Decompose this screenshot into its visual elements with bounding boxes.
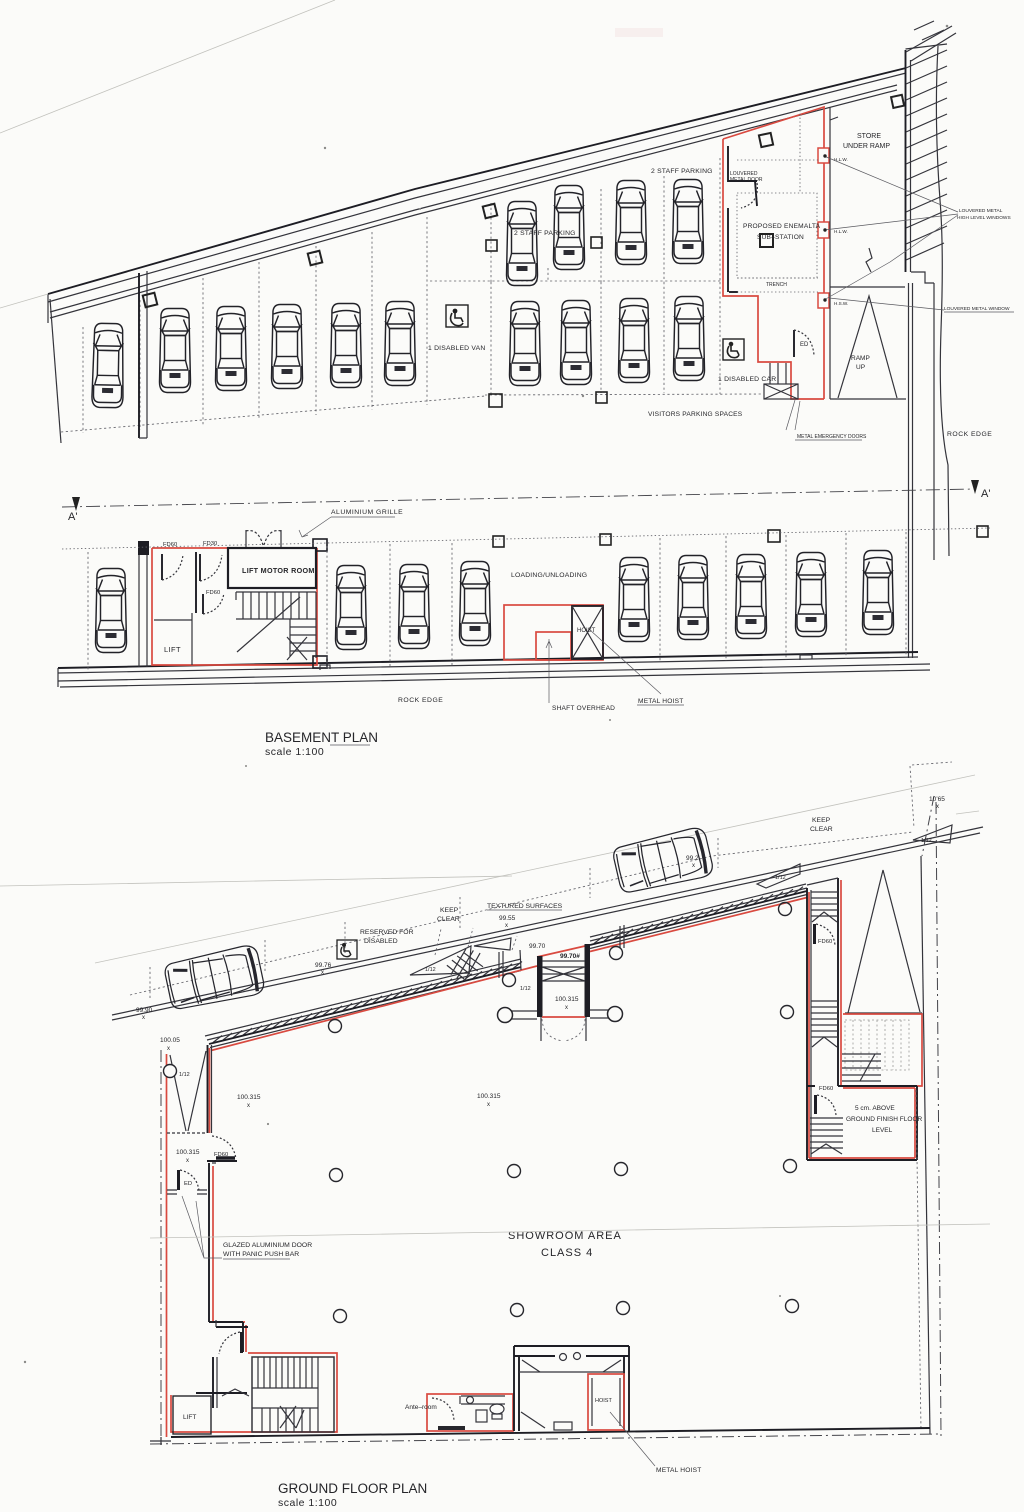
svg-text:LIFT: LIFT bbox=[164, 645, 181, 654]
svg-text:99.70#: 99.70# bbox=[560, 953, 580, 960]
svg-text:1/12: 1/12 bbox=[520, 986, 531, 992]
svg-text:x: x bbox=[936, 804, 939, 810]
svg-text:x: x bbox=[565, 1005, 568, 1011]
svg-text:LOUVERED METAL WINDOW: LOUVERED METAL WINDOW bbox=[944, 306, 1010, 312]
svg-text:5 cm. ABOVE: 5 cm. ABOVE bbox=[855, 1105, 895, 1112]
svg-text:METAL HOIST: METAL HOIST bbox=[638, 698, 683, 705]
svg-text:METAL HOIST: METAL HOIST bbox=[656, 1467, 701, 1474]
svg-text:CLEAR: CLEAR bbox=[810, 826, 833, 833]
svg-text:FD60: FD60 bbox=[214, 1152, 228, 1158]
svg-text:99.76: 99.76 bbox=[315, 962, 332, 969]
svg-text:1 DISABLED VAN: 1 DISABLED VAN bbox=[428, 345, 485, 352]
svg-text:VISITORS PARKING SPACES: VISITORS PARKING SPACES bbox=[648, 411, 743, 418]
svg-text:2 STAFF PARKING: 2 STAFF PARKING bbox=[514, 230, 576, 237]
svg-text:FD60: FD60 bbox=[818, 939, 832, 945]
svg-text:GROUND FLOOR PLAN: GROUND FLOOR PLAN bbox=[278, 1481, 427, 1496]
svg-text:99.55: 99.55 bbox=[499, 915, 516, 922]
svg-text:A': A' bbox=[981, 488, 990, 500]
svg-text:STORE: STORE bbox=[857, 133, 881, 140]
svg-text:10’65: 10’65 bbox=[929, 796, 945, 803]
svg-text:100.315: 100.315 bbox=[237, 1094, 261, 1101]
svg-text:LOUVERED METAL: LOUVERED METAL bbox=[959, 208, 1003, 214]
svg-text:BASEMENT PLAN: BASEMENT PLAN bbox=[265, 730, 378, 745]
svg-text:KEEP: KEEP bbox=[812, 817, 831, 824]
svg-text:ROCK EDGE: ROCK EDGE bbox=[947, 431, 992, 438]
svg-text:UNDER RAMP: UNDER RAMP bbox=[843, 143, 890, 150]
svg-text:1/12: 1/12 bbox=[179, 1072, 190, 1078]
svg-text:scale 1:100: scale 1:100 bbox=[278, 1497, 337, 1509]
svg-text:99.70: 99.70 bbox=[529, 943, 546, 950]
svg-text:x: x bbox=[487, 1102, 490, 1108]
svg-text:SHAFT OVERHEAD: SHAFT OVERHEAD bbox=[552, 705, 615, 712]
svg-text:99.90: 99.90 bbox=[136, 1007, 153, 1014]
svg-text:100.315: 100.315 bbox=[555, 996, 579, 1003]
svg-text:LOADING/UNLOADING: LOADING/UNLOADING bbox=[511, 572, 587, 579]
svg-text:FD30: FD30 bbox=[203, 541, 217, 547]
svg-text:DISABLED: DISABLED bbox=[364, 938, 398, 945]
svg-text:LEVEL: LEVEL bbox=[872, 1127, 893, 1134]
svg-text:GROUND FINISH FLOOR: GROUND FINISH FLOOR bbox=[846, 1116, 923, 1123]
svg-text:RAMP: RAMP bbox=[851, 355, 870, 362]
svg-text:Ante–room: Ante–room bbox=[405, 1404, 437, 1411]
svg-text:WITH PANIC PUSH BAR: WITH PANIC PUSH BAR bbox=[223, 1251, 299, 1258]
svg-text:ROCK EDGE: ROCK EDGE bbox=[398, 697, 443, 704]
svg-text:1 DISABLED CAR: 1 DISABLED CAR bbox=[718, 376, 776, 383]
svg-text:ALUMINIUM GRILLE: ALUMINIUM GRILLE bbox=[331, 509, 403, 516]
svg-text:KEEP: KEEP bbox=[440, 907, 459, 914]
svg-text:1/12: 1/12 bbox=[425, 967, 436, 973]
svg-text:x: x bbox=[321, 970, 324, 976]
svg-text:x: x bbox=[142, 1015, 145, 1021]
svg-text:2 STAFF PARKING: 2 STAFF PARKING bbox=[651, 168, 713, 175]
svg-text:100.315: 100.315 bbox=[477, 1093, 501, 1100]
svg-text:RESERVED FOR: RESERVED FOR bbox=[360, 929, 414, 936]
svg-text:scale 1:100: scale 1:100 bbox=[265, 746, 324, 758]
svg-text:A': A' bbox=[68, 511, 77, 523]
svg-text:H.L.W.: H.L.W. bbox=[834, 229, 848, 234]
svg-text:ED: ED bbox=[184, 1181, 192, 1187]
svg-text:TRENCH: TRENCH bbox=[766, 282, 787, 288]
svg-text:100.05: 100.05 bbox=[160, 1037, 180, 1044]
svg-text:CLEAR: CLEAR bbox=[437, 916, 460, 923]
svg-text:METAL DOOR: METAL DOOR bbox=[730, 177, 763, 183]
svg-text:METAL EMERGENCY DOORS: METAL EMERGENCY DOORS bbox=[797, 434, 867, 440]
svg-text:H.S.W.: H.S.W. bbox=[834, 301, 848, 306]
svg-text:HIGH LEVEL WINDOWS: HIGH LEVEL WINDOWS bbox=[957, 215, 1011, 221]
svg-text:100.315: 100.315 bbox=[176, 1149, 200, 1156]
svg-text:FD60: FD60 bbox=[163, 542, 177, 548]
svg-text:x: x bbox=[186, 1158, 189, 1164]
svg-text:HOIST: HOIST bbox=[595, 1398, 612, 1404]
svg-text:TEXTURED SURFACES: TEXTURED SURFACES bbox=[487, 903, 563, 910]
svg-text:x: x bbox=[505, 923, 508, 929]
svg-text:CLASS 4: CLASS 4 bbox=[541, 1247, 593, 1259]
svg-text:PROPOSED ENEMALTA: PROPOSED ENEMALTA bbox=[743, 223, 821, 230]
svg-text:x: x bbox=[167, 1046, 170, 1052]
svg-text:UP: UP bbox=[856, 364, 865, 371]
svg-text:SUB–STATION: SUB–STATION bbox=[757, 234, 804, 241]
svg-text:1/12: 1/12 bbox=[921, 838, 932, 844]
svg-text:ED: ED bbox=[800, 342, 809, 348]
svg-text:LIFT MOTOR ROOM: LIFT MOTOR ROOM bbox=[242, 566, 315, 575]
svg-text:1/12: 1/12 bbox=[775, 875, 786, 881]
svg-text:x: x bbox=[692, 863, 695, 869]
svg-text:FD60: FD60 bbox=[819, 1086, 833, 1092]
svg-text:GLAZED ALUMINIUM DOOR: GLAZED ALUMINIUM DOOR bbox=[223, 1242, 312, 1249]
svg-text:LIFT: LIFT bbox=[183, 1414, 196, 1421]
svg-text:99.2: 99.2 bbox=[686, 855, 699, 862]
svg-text:FD60: FD60 bbox=[206, 590, 220, 596]
svg-text:HOIST: HOIST bbox=[577, 628, 596, 634]
svg-text:x: x bbox=[247, 1103, 250, 1109]
